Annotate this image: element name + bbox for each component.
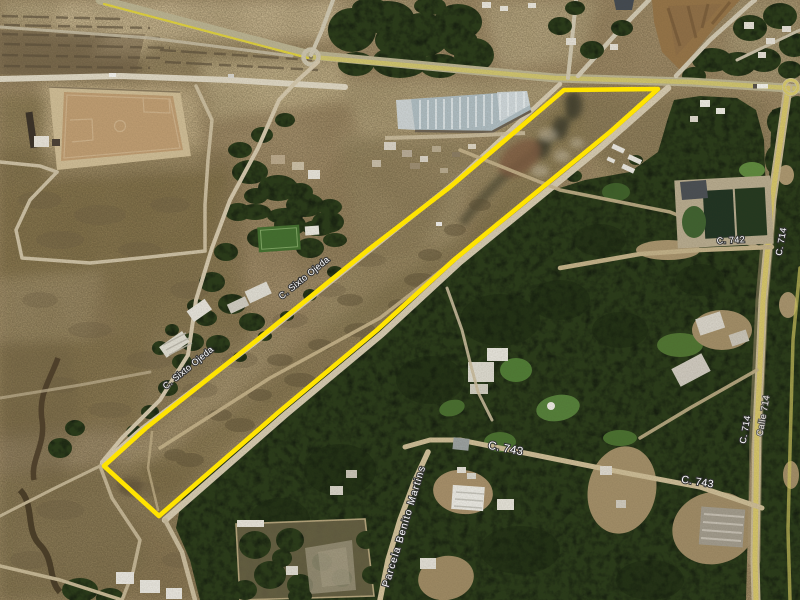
svg-text:C. 742: C. 742 <box>716 234 745 245</box>
